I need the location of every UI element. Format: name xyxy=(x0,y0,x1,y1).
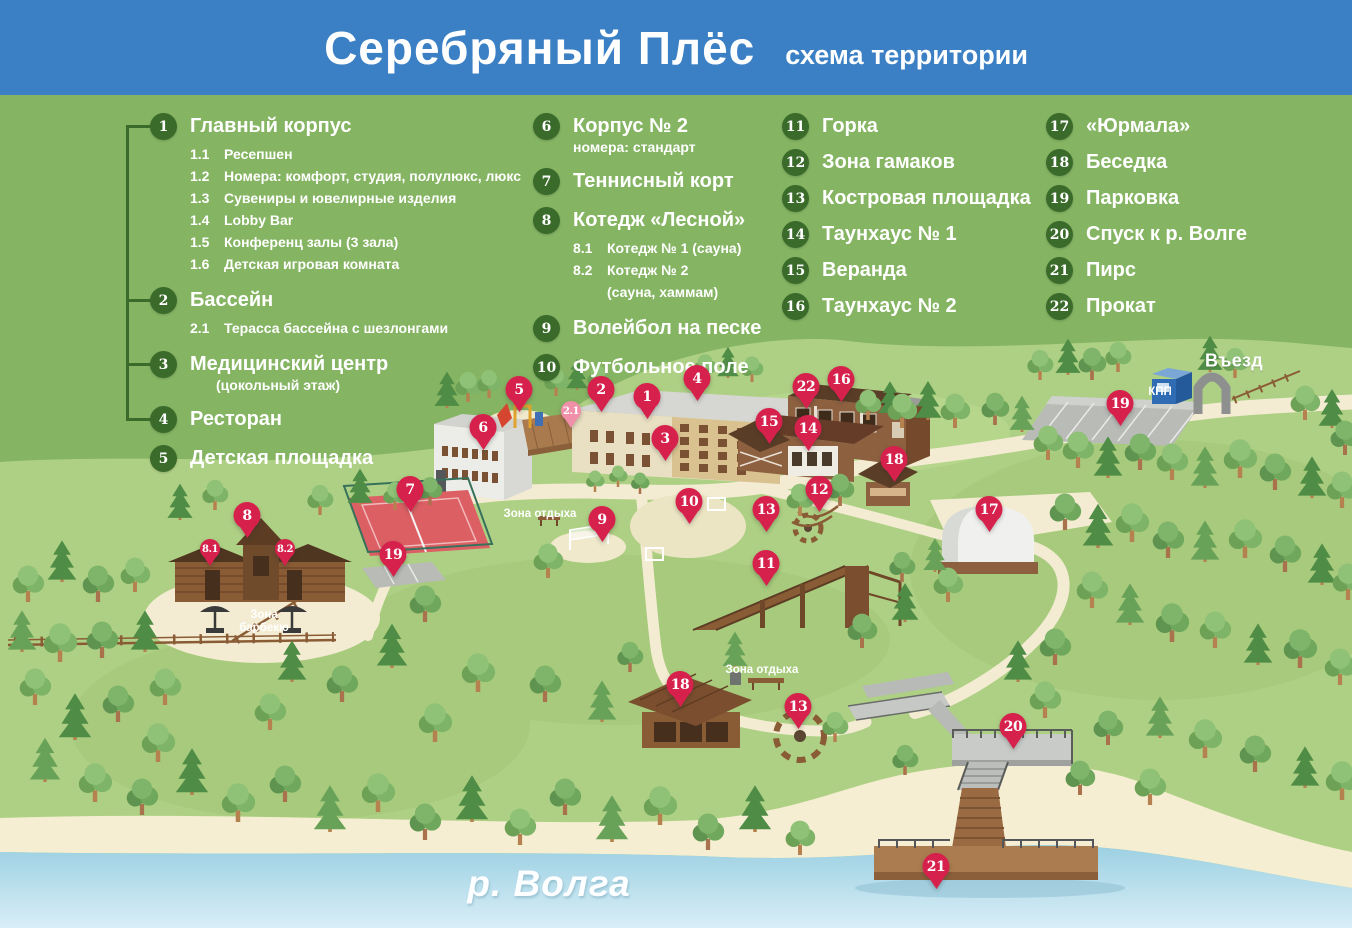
map-marker-number: 18 xyxy=(881,446,908,473)
map-marker-16: 16 xyxy=(828,366,855,402)
page-title: Серебряный Плёс xyxy=(324,21,755,75)
map-marker-2.1: 2.1 xyxy=(561,401,581,428)
map-marker-number: 1 xyxy=(634,383,661,410)
map-marker-17: 17 xyxy=(976,496,1003,532)
map-label: Зона отдыха xyxy=(726,664,799,676)
map-marker-tail xyxy=(657,449,673,461)
map-marker-number: 12 xyxy=(806,476,833,503)
map-marker-number: 20 xyxy=(1000,713,1027,740)
map-marker-tail xyxy=(790,717,806,729)
map-marker-number: 13 xyxy=(753,496,780,523)
map-marker-5: 5 xyxy=(506,376,533,412)
map-marker-4: 4 xyxy=(684,365,711,401)
map-marker-8: 8 xyxy=(234,502,261,538)
map-marker-9: 9 xyxy=(589,506,616,542)
map-marker-tail xyxy=(279,557,291,566)
map-marker-13: 13 xyxy=(753,496,780,532)
map-marker-11: 11 xyxy=(753,550,780,586)
header: Серебряный Плёс схема территории xyxy=(0,0,1352,95)
map-marker-tail xyxy=(833,390,849,402)
boardwalk xyxy=(952,788,1006,848)
map-marker-tail xyxy=(758,574,774,586)
map-marker-number: 18 xyxy=(667,671,694,698)
map-marker-tail xyxy=(475,438,491,450)
map-marker-number: 6 xyxy=(470,414,497,441)
map-label: Зона барбекю xyxy=(232,609,296,635)
map-marker-number: 4 xyxy=(684,365,711,392)
map-marker-number: 10 xyxy=(676,488,703,515)
map-marker-2: 2 xyxy=(588,376,615,412)
river xyxy=(0,845,1352,928)
map-marker-number: 9 xyxy=(589,506,616,533)
map-illustration xyxy=(0,0,1352,928)
map-marker-number: 7 xyxy=(397,476,424,503)
map-marker-tail xyxy=(402,500,418,512)
map-marker-number: 11 xyxy=(753,550,780,577)
map-marker-tail xyxy=(811,500,827,512)
map-marker-14: 14 xyxy=(795,415,822,451)
map-marker-tail xyxy=(239,526,255,538)
map-marker-number: 5 xyxy=(506,376,533,403)
map-marker-tail xyxy=(1112,414,1128,426)
map-marker-tail xyxy=(981,520,997,532)
map-marker-number: 3 xyxy=(652,425,679,452)
map-marker-8.2: 8.2 xyxy=(275,539,295,566)
map-marker-number: 16 xyxy=(828,366,855,393)
map-marker-number: 2 xyxy=(588,376,615,403)
map-marker-6: 6 xyxy=(470,414,497,450)
map-marker-number: 21 xyxy=(923,853,950,880)
territory-map-poster: 1Главный корпус1.1Ресепшен1.2Номера: ком… xyxy=(0,0,1352,928)
map-marker-tail xyxy=(928,877,944,889)
map-marker-number: 15 xyxy=(756,408,783,435)
map-marker-18: 18 xyxy=(881,446,908,482)
map-marker-tail xyxy=(639,407,655,419)
map-marker-number: 17 xyxy=(976,496,1003,523)
map-marker-tail xyxy=(886,470,902,482)
map-label: Зона отдыха xyxy=(504,508,577,520)
pier xyxy=(855,840,1125,898)
map-marker-tail xyxy=(672,695,688,707)
map-marker-tail xyxy=(681,512,697,524)
map-label: р. Волга xyxy=(467,863,630,905)
map-marker-10: 10 xyxy=(676,488,703,524)
map-marker-tail xyxy=(511,400,527,412)
map-marker-21: 21 xyxy=(923,853,950,889)
map-marker-18: 18 xyxy=(667,671,694,707)
map-label: Въезд xyxy=(1205,351,1263,372)
map-marker-tail xyxy=(800,439,816,451)
map-marker-number: 22 xyxy=(793,373,820,400)
page-subtitle: схема территории xyxy=(785,40,1028,71)
map-marker-22: 22 xyxy=(793,373,820,409)
map-marker-tail xyxy=(594,530,610,542)
map-marker-tail xyxy=(758,520,774,532)
map-marker-3: 3 xyxy=(652,425,679,461)
map-marker-1: 1 xyxy=(634,383,661,419)
map-marker-tail xyxy=(761,432,777,444)
map-marker-tail xyxy=(565,419,577,428)
map-marker-number: 13 xyxy=(785,693,812,720)
map-marker-tail xyxy=(1005,737,1021,749)
map-marker-15: 15 xyxy=(756,408,783,444)
map-marker-number: 8.1 xyxy=(200,539,220,559)
map-marker-8.1: 8.1 xyxy=(200,539,220,566)
map-marker-19: 19 xyxy=(1107,390,1134,426)
map-marker-number: 8.2 xyxy=(275,539,295,559)
map-marker-tail xyxy=(593,400,609,412)
map-marker-tail xyxy=(798,397,814,409)
map-marker-20: 20 xyxy=(1000,713,1027,749)
map-marker-tail xyxy=(385,565,401,577)
map-marker-12: 12 xyxy=(806,476,833,512)
map-marker-number: 19 xyxy=(1107,390,1134,417)
map-marker-number: 8 xyxy=(234,502,261,529)
map-marker-number: 19 xyxy=(380,541,407,568)
map-marker-13: 13 xyxy=(785,693,812,729)
map-marker-number: 2.1 xyxy=(561,401,581,421)
map-marker-number: 14 xyxy=(795,415,822,442)
map-marker-7: 7 xyxy=(397,476,424,512)
map-marker-19: 19 xyxy=(380,541,407,577)
map-marker-tail xyxy=(204,557,216,566)
map-label: КПП xyxy=(1148,386,1172,398)
map-marker-tail xyxy=(689,389,705,401)
